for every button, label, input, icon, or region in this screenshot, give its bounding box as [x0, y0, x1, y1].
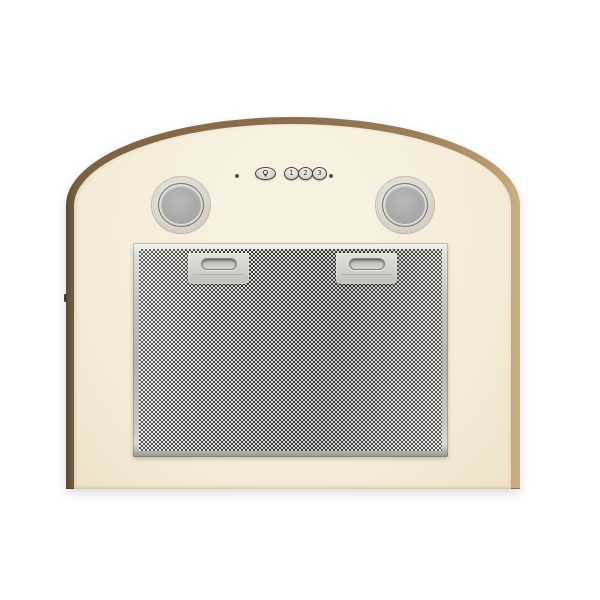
speed-button-3[interactable]: 3: [312, 167, 327, 180]
filter-handle-right[interactable]: [336, 253, 397, 284]
power-led-left: [235, 174, 239, 178]
lamp-right: [376, 177, 434, 233]
lamp-left-glass: [161, 186, 201, 224]
product-photo: 1 2 3: [0, 0, 600, 600]
speed-button-2[interactable]: 2: [298, 167, 313, 180]
power-led-right: [329, 174, 333, 178]
speed-button-1-label: 1: [289, 170, 293, 177]
light-button[interactable]: [255, 167, 276, 180]
lamp-right-glass: [385, 186, 425, 224]
grease-filter: [133, 243, 448, 457]
speed-button-2-label: 2: [303, 170, 307, 177]
speed-button-3-label: 3: [317, 170, 321, 177]
filter-handle-right-slot: [349, 258, 385, 270]
speed-button-1[interactable]: 1: [284, 167, 299, 180]
filter-handle-left-slot: [201, 258, 237, 270]
lamp-icon: [261, 169, 270, 178]
lamp-left: [152, 177, 210, 233]
filter-handle-left[interactable]: [188, 253, 249, 284]
hinge-notch: [64, 294, 67, 302]
